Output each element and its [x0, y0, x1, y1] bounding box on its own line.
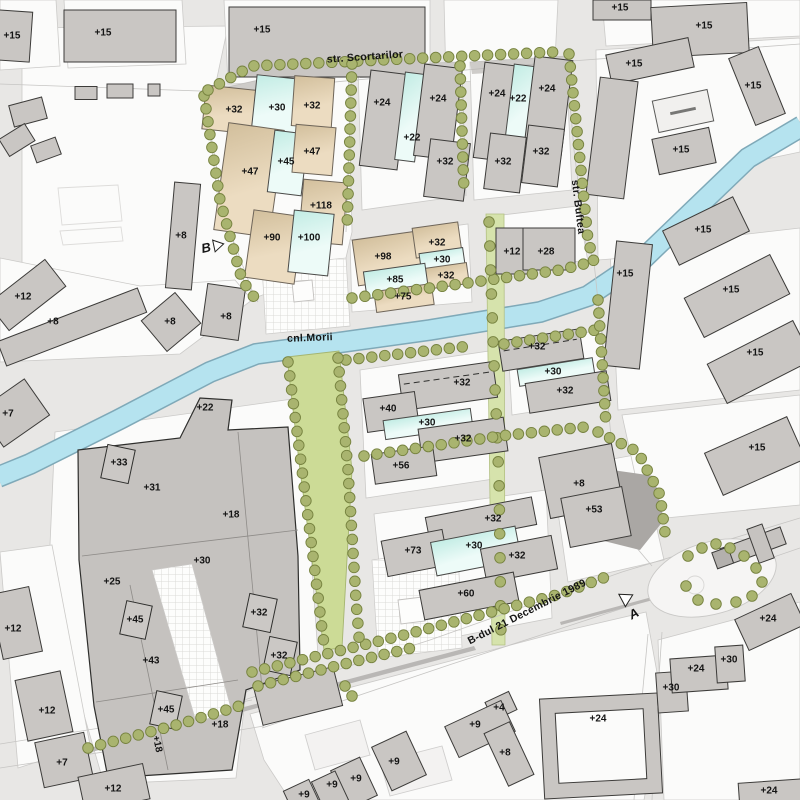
- tree: [430, 52, 441, 63]
- tree: [486, 607, 497, 618]
- building-height-label: +33: [111, 458, 128, 469]
- tree: [449, 617, 460, 628]
- tree: [392, 349, 403, 360]
- tree: [286, 385, 297, 396]
- building-height-label: +15: [673, 145, 690, 156]
- tree: [457, 126, 468, 137]
- tree: [339, 422, 350, 433]
- tree: [552, 425, 563, 436]
- tree: [436, 620, 447, 631]
- tree: [226, 72, 237, 83]
- tree: [380, 350, 391, 361]
- tree: [133, 730, 144, 741]
- tree: [340, 681, 351, 692]
- tree: [424, 283, 435, 294]
- building-height-label: +98: [375, 252, 392, 263]
- building-height-label: +24: [374, 98, 391, 109]
- tree: [221, 219, 232, 230]
- tree: [297, 468, 308, 479]
- building-height-label: +56: [393, 461, 410, 472]
- tree: [354, 632, 365, 643]
- tree: [658, 514, 669, 525]
- building-height-label: +15: [749, 443, 766, 454]
- tree: [757, 577, 768, 588]
- tree: [456, 87, 467, 98]
- tree: [494, 529, 505, 540]
- tree: [283, 357, 294, 368]
- building-height-label: +32: [509, 551, 526, 562]
- tree: [384, 447, 395, 458]
- tree: [341, 658, 352, 669]
- building-height-label: +30: [434, 255, 451, 266]
- tree: [550, 331, 561, 342]
- building-height-label: +30: [269, 103, 286, 114]
- building-height-label: +24: [430, 94, 447, 105]
- tree: [404, 643, 415, 654]
- tree: [315, 607, 326, 618]
- tree: [313, 593, 324, 604]
- building-height-label: +30: [663, 683, 680, 694]
- tree: [354, 655, 365, 666]
- tree: [343, 176, 354, 187]
- building: [539, 693, 662, 799]
- tree: [344, 478, 355, 489]
- building-height-label: +18: [212, 720, 229, 731]
- tree: [297, 654, 308, 665]
- tree: [336, 395, 347, 406]
- building-height-label: +28: [538, 247, 555, 258]
- tree: [340, 436, 351, 447]
- building-height-label: +31: [144, 483, 161, 494]
- tree: [209, 155, 220, 166]
- tree: [349, 562, 360, 573]
- tree: [576, 327, 587, 338]
- tree: [342, 215, 353, 226]
- tree: [500, 430, 511, 441]
- building-height-label: +8: [47, 317, 59, 328]
- tree: [600, 412, 611, 423]
- building: [148, 84, 160, 96]
- tree: [508, 49, 519, 60]
- tree: [491, 409, 502, 420]
- tree: [489, 361, 500, 372]
- tree: [345, 506, 356, 517]
- building-height-label: +15: [612, 3, 629, 14]
- tree: [458, 165, 469, 176]
- tree: [501, 272, 512, 283]
- tree: [521, 48, 532, 59]
- tree: [314, 58, 325, 69]
- tree: [540, 267, 551, 278]
- building-height-label: +73: [405, 546, 422, 557]
- building-height-label: +15: [254, 25, 271, 36]
- tree: [588, 255, 599, 266]
- building-height-label: +30: [721, 655, 738, 666]
- tree: [344, 137, 355, 148]
- building-height-label: +8: [164, 317, 176, 328]
- tree: [456, 113, 467, 124]
- building-height-label: +22: [404, 133, 421, 144]
- tree: [158, 723, 169, 734]
- building-height-label: +45: [278, 157, 295, 168]
- tree: [569, 100, 580, 111]
- tree: [201, 104, 212, 115]
- tree: [207, 142, 218, 153]
- building-height-label: +32: [529, 342, 546, 353]
- tree: [346, 72, 357, 83]
- building-height-label: +32: [437, 157, 454, 168]
- building-height-label: +7: [56, 758, 68, 769]
- tree: [344, 492, 355, 503]
- building-height-label: +15: [4, 31, 21, 42]
- tree: [411, 284, 422, 295]
- tree: [295, 454, 306, 465]
- tree: [593, 427, 604, 438]
- building-height-label: +25: [104, 577, 121, 588]
- building-footprint: [148, 84, 160, 96]
- building-height-label: +15: [95, 28, 112, 39]
- building-height-label: +12: [5, 624, 22, 635]
- tree: [342, 202, 353, 213]
- tree: [731, 597, 742, 608]
- tree: [475, 434, 486, 445]
- tree: [171, 720, 182, 731]
- building-footprint: [75, 87, 97, 100]
- building-height-label: +8: [573, 479, 585, 490]
- tree: [431, 345, 442, 356]
- building-height-label: +32: [271, 651, 288, 662]
- tree: [347, 293, 358, 304]
- tree: [476, 276, 487, 287]
- building: [64, 10, 176, 62]
- building-height-label: +118: [310, 201, 332, 212]
- tree: [292, 426, 303, 437]
- building-height-label: +9: [350, 774, 362, 785]
- tree: [487, 432, 498, 443]
- tree: [456, 100, 467, 111]
- tree: [218, 206, 229, 217]
- building-height-label: +45: [127, 615, 144, 626]
- tree: [697, 543, 708, 554]
- tree: [345, 124, 356, 135]
- tree: [747, 591, 758, 602]
- tree: [354, 353, 365, 364]
- tree: [373, 636, 384, 647]
- tree: [348, 642, 359, 653]
- tree: [463, 278, 474, 289]
- tree: [599, 386, 610, 397]
- tree: [310, 565, 321, 576]
- tree: [265, 678, 276, 689]
- tree: [458, 152, 469, 163]
- tree: [347, 534, 358, 545]
- tree: [469, 50, 480, 61]
- tree: [290, 412, 301, 423]
- building-height-label: +7: [2, 409, 14, 420]
- plaza-square: [292, 280, 314, 302]
- tree: [373, 289, 384, 300]
- tree: [316, 665, 327, 676]
- tree: [345, 111, 356, 122]
- tree: [208, 709, 219, 720]
- tree: [328, 661, 339, 672]
- tree: [301, 58, 312, 69]
- tree: [487, 313, 498, 324]
- tree: [285, 371, 296, 382]
- building: [75, 87, 97, 100]
- tree: [343, 189, 354, 200]
- tree: [291, 671, 302, 682]
- tree: [482, 50, 493, 61]
- tree: [681, 581, 692, 592]
- tree: [593, 295, 604, 306]
- tree: [359, 451, 370, 462]
- building-height-label: +12: [39, 706, 56, 717]
- tree: [458, 178, 469, 189]
- tree: [484, 217, 495, 228]
- tree: [203, 85, 214, 96]
- tree: [494, 481, 505, 492]
- tree: [346, 85, 357, 96]
- tree: [247, 667, 258, 678]
- building-height-label: +90: [264, 233, 281, 244]
- tree: [739, 551, 750, 562]
- tree: [262, 60, 273, 71]
- tree: [495, 577, 506, 588]
- tree: [574, 152, 585, 163]
- tree: [711, 539, 722, 550]
- tree: [565, 62, 576, 73]
- tree: [196, 712, 207, 723]
- tree: [333, 353, 344, 364]
- tree: [311, 579, 322, 590]
- tree: [397, 445, 408, 456]
- tree: [379, 649, 390, 660]
- building-height-label: +9: [469, 720, 481, 731]
- tree: [411, 627, 422, 638]
- tree: [423, 623, 434, 634]
- building-height-label: +53: [586, 505, 603, 516]
- tree: [553, 265, 564, 276]
- tree: [443, 52, 454, 63]
- tree: [578, 259, 589, 270]
- tree: [711, 599, 722, 610]
- building-height-label: +4: [493, 703, 505, 714]
- building-height-label: +22: [510, 94, 527, 105]
- tree: [564, 49, 575, 60]
- tree: [456, 51, 467, 62]
- tree: [353, 618, 364, 629]
- tree: [318, 635, 329, 646]
- tree: [444, 343, 455, 354]
- building-height-label: +24: [590, 714, 607, 725]
- building-height-label: +12: [15, 292, 32, 303]
- tree: [457, 342, 468, 353]
- tree: [221, 705, 232, 716]
- building-height-label: +75: [395, 292, 412, 303]
- tree: [660, 526, 671, 537]
- tree: [499, 339, 510, 350]
- tree: [410, 443, 421, 454]
- tree: [636, 453, 647, 464]
- building-height-label: +32: [485, 514, 502, 525]
- tree: [367, 352, 378, 363]
- tree: [594, 321, 605, 332]
- building-height-label: +9: [326, 780, 338, 791]
- building-height-label: +32: [533, 147, 550, 158]
- tree: [512, 337, 523, 348]
- tree: [386, 633, 397, 644]
- tree: [95, 739, 106, 750]
- tree: [348, 548, 359, 559]
- building-height-label: +24: [489, 89, 506, 100]
- tree: [301, 496, 312, 507]
- tree: [232, 256, 243, 267]
- building-height-label: +15: [626, 59, 643, 70]
- tree: [347, 691, 358, 702]
- tree: [418, 346, 429, 357]
- tree: [534, 47, 545, 58]
- tree: [461, 613, 472, 624]
- building-height-label: +24: [539, 84, 556, 95]
- tree: [249, 61, 260, 72]
- tree: [215, 194, 226, 205]
- tree: [83, 743, 94, 754]
- tree: [594, 308, 605, 319]
- building-height-label: +24: [688, 664, 705, 675]
- tree: [485, 241, 496, 252]
- tree: [346, 98, 357, 109]
- building-height-label: +32: [557, 386, 574, 397]
- tree: [598, 373, 609, 384]
- street-label-canal-morii: cnl.Morii: [287, 331, 333, 345]
- building-height-label: +15: [747, 348, 764, 359]
- tree: [596, 347, 607, 358]
- tree: [417, 53, 428, 64]
- tree: [599, 399, 610, 410]
- tree: [302, 509, 313, 520]
- tree: [539, 426, 550, 437]
- building-height-label: +30: [419, 418, 436, 429]
- tree: [275, 59, 286, 70]
- tree: [338, 409, 349, 420]
- building-height-label: +12: [105, 784, 122, 795]
- tree: [334, 367, 345, 378]
- building-height-label: +15: [695, 225, 712, 236]
- tree: [392, 646, 403, 657]
- building-height-label: +30: [466, 541, 483, 552]
- tree: [527, 269, 538, 280]
- tree: [351, 604, 362, 615]
- building-height-label: +32: [454, 378, 471, 389]
- tree: [585, 242, 596, 253]
- tree: [303, 668, 314, 679]
- building-height-label: +32: [251, 608, 268, 619]
- tree: [493, 457, 504, 468]
- building-height-label: +47: [304, 147, 321, 158]
- building-height-label: +43: [143, 656, 160, 667]
- tree: [120, 733, 131, 744]
- tree: [306, 537, 317, 548]
- tree: [310, 651, 321, 662]
- building-height-label: +12: [504, 247, 521, 258]
- building-height-label: +15: [696, 21, 713, 32]
- building-height-label: +8: [220, 312, 232, 323]
- tree: [514, 270, 525, 281]
- tree: [344, 150, 355, 161]
- tree: [108, 736, 119, 747]
- building-height-label: +9: [298, 790, 310, 800]
- building-height-label: +47: [242, 167, 259, 178]
- tree: [490, 385, 501, 396]
- tree: [751, 563, 762, 574]
- tree: [235, 269, 246, 280]
- tree: [323, 648, 334, 659]
- tree: [693, 595, 704, 606]
- building-height-label: +32: [455, 434, 472, 445]
- tree: [350, 590, 361, 601]
- tree: [656, 501, 667, 512]
- tree: [360, 291, 371, 302]
- tree: [486, 289, 497, 300]
- tree: [341, 450, 352, 461]
- tree: [568, 88, 579, 99]
- tree: [288, 398, 299, 409]
- tree: [294, 440, 305, 451]
- tree: [278, 674, 289, 685]
- tree: [346, 520, 357, 531]
- building-height-label: +32: [495, 157, 512, 168]
- tree: [455, 61, 466, 72]
- building-height-label: +22: [197, 403, 214, 414]
- tree: [547, 47, 558, 58]
- tree: [272, 661, 283, 672]
- tree: [654, 488, 665, 499]
- tree: [495, 49, 506, 60]
- tree: [598, 573, 609, 584]
- tree: [228, 244, 239, 255]
- building-height-label: +24: [760, 614, 777, 625]
- tree: [253, 681, 264, 692]
- building-height-label: +15: [723, 285, 740, 296]
- tree: [570, 113, 581, 124]
- building-height-label: +32: [438, 271, 455, 282]
- tree: [573, 139, 584, 150]
- tree: [344, 163, 355, 174]
- tree: [572, 126, 583, 137]
- tree: [183, 716, 194, 727]
- tree: [495, 553, 506, 564]
- building-height-label: +85: [387, 275, 404, 286]
- tree: [203, 116, 214, 127]
- tree: [578, 422, 589, 433]
- building-height-label: +8: [175, 231, 187, 242]
- building-height-label: +8: [499, 748, 511, 759]
- tree: [259, 664, 270, 675]
- tree: [299, 482, 310, 493]
- building-height-label: +15: [745, 81, 762, 92]
- tree: [499, 603, 510, 614]
- tree: [437, 281, 448, 292]
- tree: [335, 381, 346, 392]
- building-height-label: +24: [761, 786, 778, 797]
- building-height-label: +45: [158, 705, 175, 716]
- tree: [237, 66, 248, 77]
- building-height-label: +15: [617, 269, 634, 280]
- tree: [350, 576, 361, 587]
- tree: [398, 630, 409, 641]
- building-height-label: +100: [298, 233, 321, 244]
